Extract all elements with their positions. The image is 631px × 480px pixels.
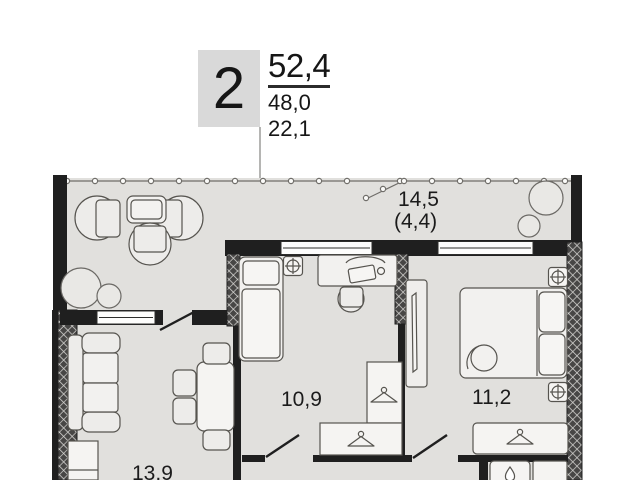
balcony-area-label: 14,5 [398,188,439,212]
double-bed [460,288,567,378]
wall-living-top-b [192,310,228,325]
dining-chair [173,398,196,424]
plant-icon [529,181,563,215]
dining-chair [203,430,230,450]
radiator-icon [549,268,568,287]
plant-icon [97,284,121,308]
sofa [68,333,120,432]
radiator-icon [284,257,303,276]
bathroom-fixtures [490,461,567,480]
mirror-wardrobe [406,280,427,387]
desk [318,255,397,286]
bedroom2-area-label: 11,2 [472,386,511,410]
dining-table [197,362,234,431]
wall-bath-stub [479,462,488,480]
wall-right-balcony [571,175,582,243]
dining-chair [203,343,230,364]
wall-right-insulated [567,242,582,480]
wall-hall-a [242,455,265,462]
wardrobe [473,423,568,454]
single-bed [239,257,283,361]
kitchen-unit [68,441,98,480]
living-area-label: 13,9 [132,462,173,480]
plant-icon [61,268,101,308]
wall-interior-a-top [227,254,240,326]
bath-fixture [533,461,567,480]
balcony-area-secondary-label: (4,4) [394,210,437,234]
wardrobe [320,423,402,455]
dining-chair [173,370,196,396]
bedroom1-area-label: 10,9 [281,388,322,412]
plant-icon [518,215,540,237]
wall-hall-b [313,455,412,462]
radiator-icon [549,383,568,402]
floor-plan-page: 2 52,4 48,0 22,1 [0,0,631,480]
